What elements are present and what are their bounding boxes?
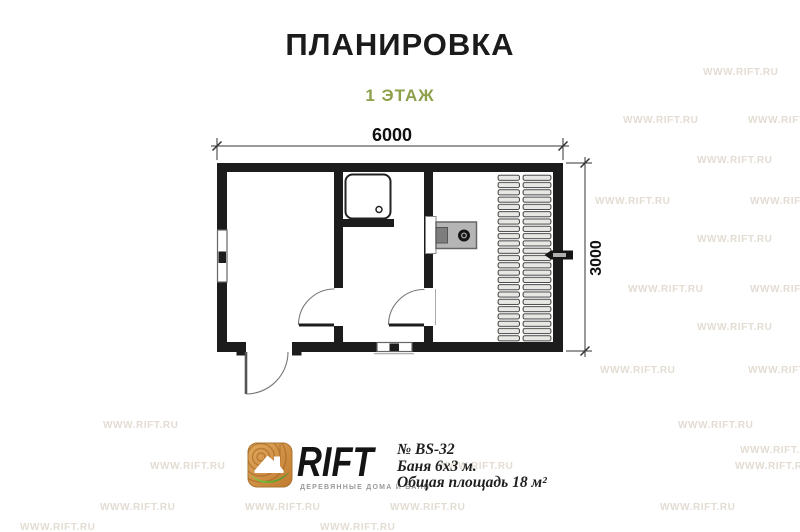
shower-tray [346,175,391,219]
rift-logo-icon [247,442,293,488]
entrance-jamb-right [292,342,302,356]
stove-firebox-door [436,228,448,244]
entrance-door-swing [246,352,288,394]
rift-logo-text: RIFT [297,441,374,483]
dimension-width: 6000 [211,125,569,160]
shower [343,175,394,228]
project-name: Баня 6х3 м. [397,459,547,476]
sauna-bench-right [523,175,552,342]
bottom-wall-mid [293,342,377,352]
bottom-wall-right [412,342,563,352]
shower-partition [343,219,394,227]
project-area: Общая площадь 18 м² [397,475,547,492]
left-wall-lower [217,282,227,352]
partition-wall-1-upper [334,172,343,288]
stove-firebox-tunnel [426,217,437,254]
partition-wall-1-stub [334,326,343,342]
dimension-height-label: 3000 [588,240,605,276]
top-wall [217,163,563,172]
left-wall-upper [217,163,227,230]
floor-plan-page: WWW.RIFT.RUWWW.RIFT.RUWWW.RIFT.RUWWW.RIF… [0,0,800,532]
entrance-door [246,352,288,394]
dimension-width-label: 6000 [372,125,412,145]
sauna-bench-left [498,175,521,342]
project-number: № BS-32 [397,442,547,459]
shower-drain-icon [376,207,382,213]
stove [426,217,477,254]
sauna-benches [498,175,552,342]
partition-wall-2-stub [424,326,433,342]
window-left [218,230,228,282]
window-bottom [374,343,414,354]
project-info: № BS-32 Баня 6х3 м. Общая площадь 18 м² [397,442,547,492]
entrance-jamb-left [237,342,247,356]
